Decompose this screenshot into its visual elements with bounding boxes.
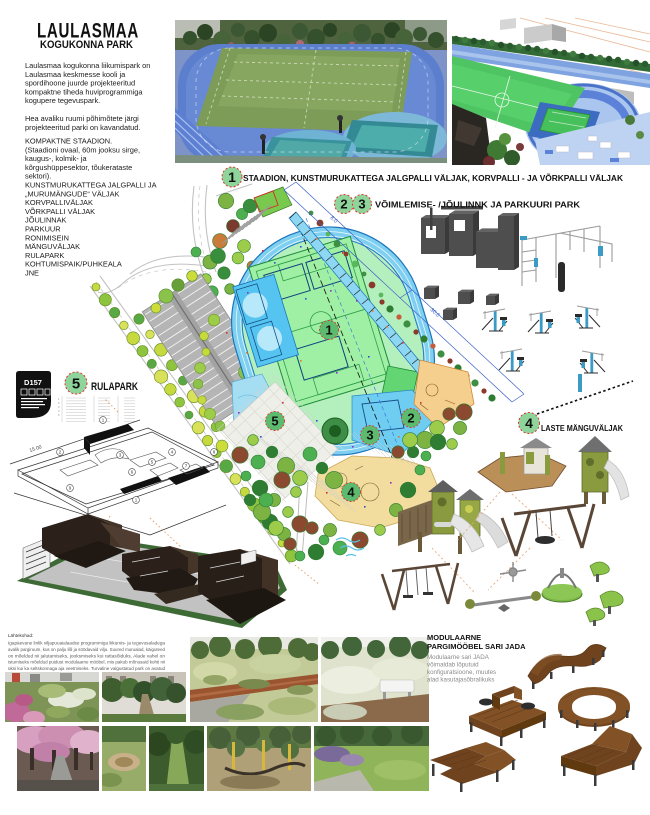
svg-text:3: 3 <box>358 197 365 212</box>
svg-text:sektori).: sektori). <box>25 172 51 181</box>
svg-text:Lähtekohad:: Lähtekohad: <box>8 633 33 638</box>
svg-text:PARKUUR: PARKUUR <box>25 225 61 234</box>
svg-text:RULAPARK: RULAPARK <box>25 251 64 260</box>
svg-text:1: 1 <box>325 323 332 338</box>
svg-text:KOMPAKTNE STAADION.: KOMPAKTNE STAADION. <box>25 137 112 146</box>
svg-text:kõrgushüppesektor, tõukeratast: kõrgushüppesektor, tõukerataste <box>25 163 132 172</box>
svg-text:RONIMISEIN: RONIMISEIN <box>25 233 69 242</box>
svg-text:4: 4 <box>525 415 533 431</box>
svg-text:kaugus-, kolmik- ja: kaugus-, kolmik- ja <box>25 154 87 163</box>
svg-text:Laulasmaa keskmesse kooli ja: Laulasmaa keskmesse kooli ja <box>25 70 126 79</box>
svg-text:spordihoone juurde projekteeri: spordihoone juurde projekteeritud <box>25 79 135 88</box>
svg-text:MÄNGUVÄLJAK: MÄNGUVÄLJAK <box>25 242 80 251</box>
svg-text:JÕULINNAK: JÕULINNAK <box>25 216 67 225</box>
svg-text:projekteeritud parki on kavand: projekteeritud parki on kavandatud. <box>25 123 140 132</box>
svg-text:5: 5 <box>271 414 278 429</box>
svg-text:5: 5 <box>72 376 80 393</box>
svg-text:alad kasutajasõbralikuks: alad kasutajasõbralikuks <box>427 677 494 684</box>
svg-text:KOGUKONNA PARK: KOGUKONNA PARK <box>40 39 133 51</box>
svg-text:RULAPARK: RULAPARK <box>91 381 138 393</box>
svg-text:avalik pargiruum, kus on palju: avalik pargiruum, kus on palju lilli ja … <box>8 647 165 652</box>
svg-text:4: 4 <box>347 485 355 500</box>
svg-text:D157: D157 <box>24 378 42 387</box>
svg-text:on mõeldud nii jalutamiseks, j: on mõeldud nii jalutamiseks, jooksmiseks… <box>8 653 165 658</box>
svg-text:üksi kui ka seltskonnaga aja v: üksi kui ka seltskonnaga aja veetmiseks.… <box>8 666 165 671</box>
svg-text:PARGIMÖÖBEL SARI JADA: PARGIMÖÖBEL SARI JADA <box>427 642 526 651</box>
svg-text:Laulasmaa kogukonna liikumispa: Laulasmaa kogukonna liikumispark on <box>25 61 150 70</box>
svg-text:3: 3 <box>366 428 373 443</box>
svg-text:Modulaarne sari JADA: Modulaarne sari JADA <box>427 654 490 661</box>
svg-text:MODULAARNE: MODULAARNE <box>427 633 481 642</box>
svg-text:võimaldab lõputuid: võimaldab lõputuid <box>427 662 479 669</box>
svg-text:Igapäevane linlik viljapuuaial: Igapäevane linlik viljapuuaialaadse prog… <box>8 641 165 646</box>
svg-text:Hea avaliku ruumi põhimõtete j: Hea avaliku ruumi põhimõtete järgi <box>25 114 139 123</box>
svg-text:VÕIMLEMISE- /JÕULINNK JA PARKU: VÕIMLEMISE- /JÕULINNK JA PARKUURI PARK <box>375 201 580 210</box>
svg-text:2: 2 <box>340 197 347 212</box>
svg-text:VÕRKPALLI VÄLJAK: VÕRKPALLI VÄLJAK <box>25 207 95 216</box>
svg-text:kogupere tegevuspark.: kogupere tegevuspark. <box>25 96 100 105</box>
svg-text:JNE: JNE <box>25 269 39 278</box>
svg-text:KUNSTMURUKATTEGA JALGPALLI JA: KUNSTMURUKATTEGA JALGPALLI JA <box>25 181 157 190</box>
svg-text:konfiguratsioone, muutes: konfiguratsioone, muutes <box>427 669 496 676</box>
svg-text:1: 1 <box>228 169 236 185</box>
svg-text:kompaktne tiheda huviprogrammi: kompaktne tiheda huviprogrammiga <box>25 87 143 96</box>
svg-text:KORVPALLIVÄLJAK: KORVPALLIVÄLJAK <box>25 198 93 207</box>
svg-text:KOHTUMISPAIK/PUHKEALA: KOHTUMISPAIK/PUHKEALA <box>25 260 122 269</box>
svg-text:STAADION, KUNSTMURUKATTEGA JAL: STAADION, KUNSTMURUKATTEGA JALGPALLI VÄL… <box>243 174 623 183</box>
svg-text:2: 2 <box>407 411 414 426</box>
svg-text:„MURUMÄNGUDE“ VÄLJAK: „MURUMÄNGUDE“ VÄLJAK <box>25 189 120 198</box>
svg-text:LASTE MÄNGUVÄLJAK: LASTE MÄNGUVÄLJAK <box>541 423 624 433</box>
svg-text:istumiseks mõeldud puidust mod: istumiseks mõeldud puidust modulaarne mö… <box>8 660 165 665</box>
svg-text:(Staadioni ovaal, 60m jooksu s: (Staadioni ovaal, 60m jooksu sirge, <box>25 145 140 154</box>
